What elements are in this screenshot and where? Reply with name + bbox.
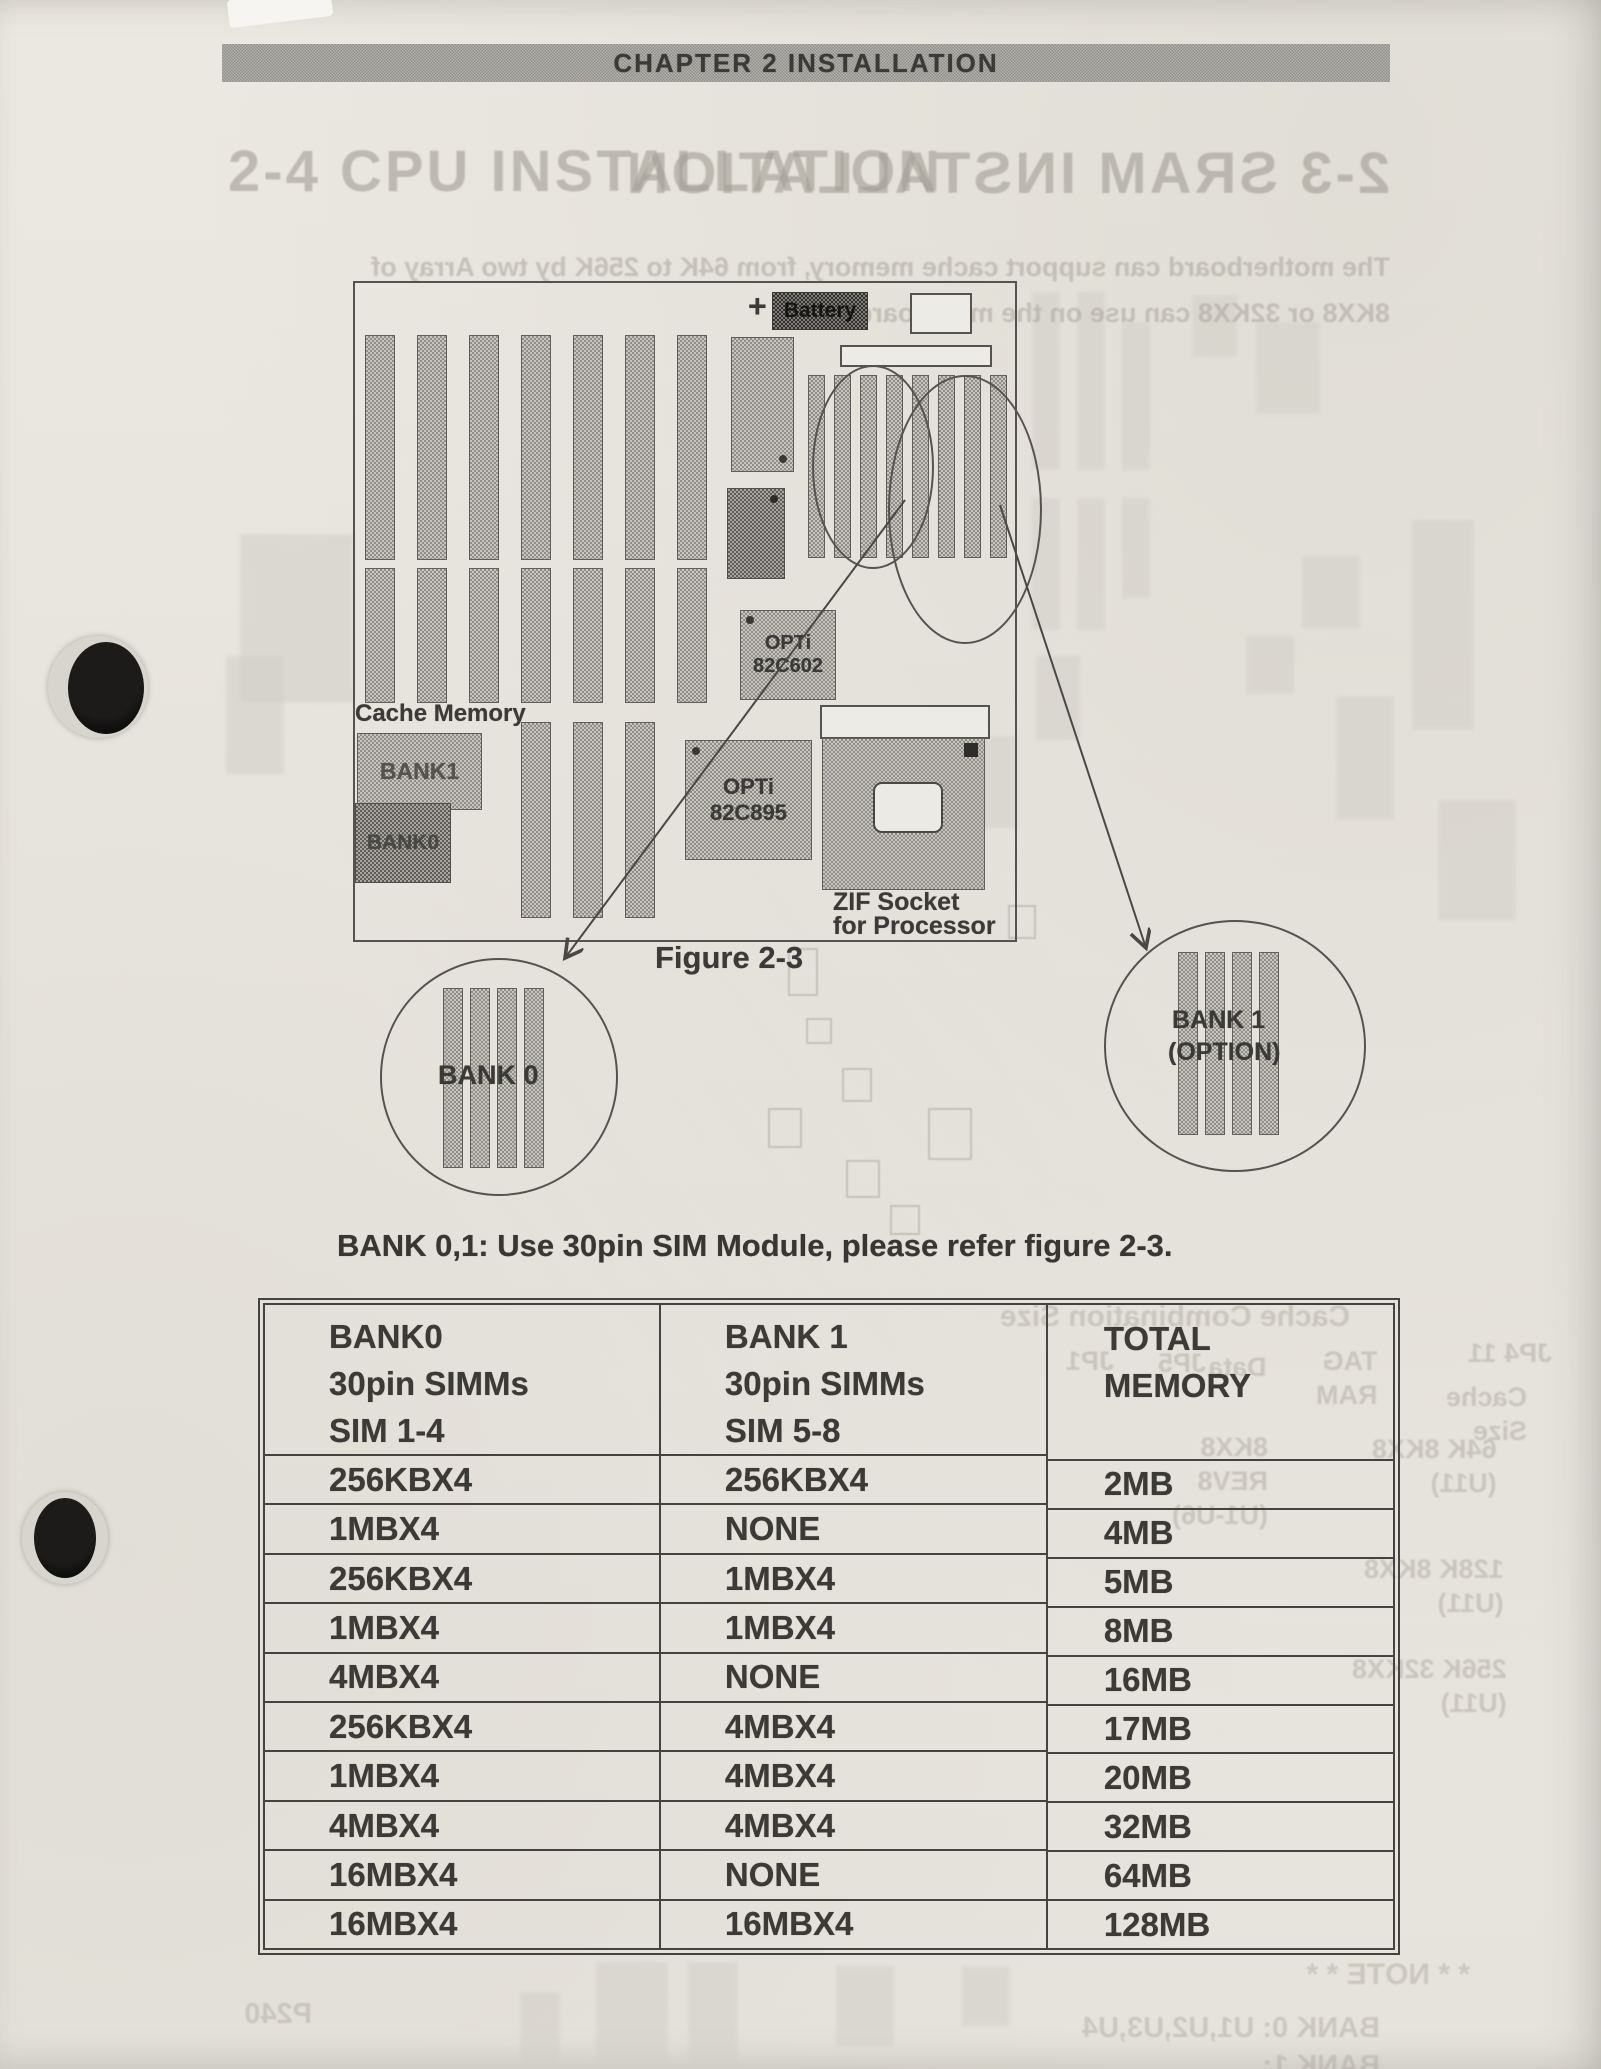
simm-highlight-ellipse-right [888, 375, 1042, 644]
total-header-line1: TOTAL [1104, 1315, 1393, 1362]
total-header-line2: MEMORY [1104, 1362, 1393, 1409]
bank1-callout-label-line1: BANK 1 [1172, 1006, 1265, 1035]
opti-82c895-label-line2: 82C895 [710, 800, 787, 826]
table-cell-bank0: 1MBX4 [265, 1750, 659, 1799]
chapter-header-bar: CHAPTER 2 INSTALLATION [222, 44, 1390, 82]
isa-slot-bar [677, 335, 707, 560]
table-cell-bank0: 1MBX4 [265, 1503, 659, 1552]
keyboard-controller-chip [727, 488, 785, 579]
table-cell-total: 20MB [1048, 1752, 1393, 1801]
table-cell-bank1: 4MBX4 [661, 1701, 1046, 1750]
ghost-table-fragment: JP4 11 [1468, 1336, 1552, 1370]
isa-slot-bar [521, 722, 551, 918]
bank-note-line: BANK 0,1: Use 30pin SIM Module, please r… [337, 1228, 1173, 1264]
opti-82c602-label-line2: 82C602 [753, 655, 823, 678]
chapter-header-text: CHAPTER 2 INSTALLATION [613, 48, 998, 79]
table-cell-total: 8MB [1048, 1606, 1393, 1655]
opti-82c602-label-line1: OPTi [765, 632, 811, 655]
isa-slot-bar [365, 335, 395, 560]
bios-chip [731, 337, 794, 472]
bleed-outline-box [846, 1160, 880, 1198]
figure-caption: Figure 2-3 [655, 940, 803, 976]
bleed-rect [1122, 322, 1150, 470]
cache-bank1-label: BANK1 [380, 758, 459, 785]
bleed-rect [520, 1992, 560, 2068]
table-cell-bank1: 256KBX4 [661, 1454, 1046, 1503]
table-cell-total: 17MB [1048, 1704, 1393, 1753]
table-cell-total: 32MB [1048, 1801, 1393, 1850]
table-cell-bank0: 16MBX4 [265, 1899, 659, 1948]
opti-82c602-chip: OPTi 82C602 [740, 610, 836, 700]
table-column-total: TOTAL MEMORY 2MB4MB5MB8MB16MB17MB20MB32M… [1048, 1305, 1393, 1948]
bleed-outline-box [806, 1018, 832, 1044]
isa-slot-bar [417, 568, 447, 703]
bank0-header-line1: BANK0 [329, 1313, 659, 1360]
table-column-bank1: BANK 1 30pin SIMMs SIM 5-8 256KBX4NONE1M… [661, 1305, 1048, 1948]
bank1-column-header: BANK 1 30pin SIMMs SIM 5-8 [661, 1305, 1046, 1454]
table-cell-bank1: 16MBX4 [661, 1899, 1046, 1948]
zif-lever-plate [820, 705, 990, 739]
bank0-header-line3: SIM 1-4 [329, 1407, 659, 1454]
opti-82c895-label-line1: OPTi [723, 774, 774, 800]
table-cell-bank0: 1MBX4 [265, 1602, 659, 1651]
total-column-header: TOTAL MEMORY [1048, 1305, 1393, 1459]
isa-slot-bar [677, 568, 707, 703]
table-cell-bank1: 1MBX4 [661, 1602, 1046, 1651]
bank1-header-line3: SIM 5-8 [725, 1407, 1046, 1454]
isa-slot-bar [417, 335, 447, 560]
cache-memory-label: Cache Memory [355, 700, 526, 728]
bleed-outline-box [768, 1108, 802, 1148]
bank0-column-header: BANK0 30pin SIMMs SIM 1-4 [265, 1305, 659, 1454]
isa-slot-bar [573, 335, 603, 560]
bleed-rect [688, 1962, 738, 2068]
bleed-rect [1412, 520, 1474, 730]
cache-bank1-block: BANK1 [357, 733, 482, 810]
isa-slot-bar [573, 722, 603, 918]
ghost-bank1-note: BANK 1: U7,U8,U9,U10 [1080, 2050, 1380, 2069]
table-cell-bank1: 1MBX4 [661, 1553, 1046, 1602]
bleed-rect [1122, 498, 1150, 598]
table-cell-total: 16MB [1048, 1655, 1393, 1704]
keyboard-connector [910, 293, 972, 334]
battery-block: Battery [772, 292, 868, 330]
opti-82c895-chip: OPTi 82C895 [685, 740, 812, 860]
bleed-outline-box [928, 1108, 972, 1160]
bleed-rect [1036, 656, 1080, 740]
bank0-header-line2: 30pin SIMMs [329, 1360, 659, 1407]
table-cell-bank1: 4MBX4 [661, 1750, 1046, 1799]
isa-slot-bar [625, 568, 655, 703]
bleed-rect [1302, 556, 1360, 628]
bank0-callout-label: BANK 0 [438, 1060, 539, 1091]
bleed-rect [1336, 696, 1394, 820]
bleed-rect [1246, 636, 1294, 694]
zif-label-line2: for Processor [833, 912, 996, 941]
memory-config-table: BANK0 30pin SIMMs SIM 1-4 256KBX41MBX425… [258, 1298, 1400, 1955]
bleed-rect [962, 1966, 1010, 2026]
table-column-bank0: BANK0 30pin SIMMs SIM 1-4 256KBX41MBX425… [265, 1305, 661, 1948]
bleed-rect [836, 1966, 894, 2046]
ghost-page-number: P240 [222, 1998, 312, 2031]
cache-bank0-label: BANK0 [367, 831, 439, 855]
table-cell-bank1: 4MBX4 [661, 1800, 1046, 1849]
bank1-header-line1: BANK 1 [725, 1313, 1046, 1360]
table-cell-bank0: 256KBX4 [265, 1454, 659, 1503]
table-cell-total: 5MB [1048, 1557, 1393, 1606]
table-cell-bank0: 16MBX4 [265, 1849, 659, 1898]
table-cell-total: 2MB [1048, 1459, 1393, 1508]
table-cell-total: 4MB [1048, 1508, 1393, 1557]
isa-slot-bar [521, 568, 551, 703]
ghost-title-back-mirrored: 2-3 SRAM INSTALLATION [555, 140, 1390, 207]
isa-slot-bar [469, 568, 499, 703]
ghost-note: * * NOTE * * [1270, 1958, 1470, 1992]
bleed-rect [596, 1962, 668, 2068]
table-cell-bank1: NONE [661, 1503, 1046, 1552]
ghost-paragraph-line1: The motherboard can support cache memory… [300, 252, 1390, 283]
zif-socket-body [822, 738, 985, 890]
bank1-header-line2: 30pin SIMMs [725, 1360, 1046, 1407]
table-cell-bank1: NONE [661, 1849, 1046, 1898]
battery-plus-sign: + [748, 288, 767, 325]
isa-slot-bar [521, 335, 551, 560]
memory-config-table-inner: BANK0 30pin SIMMs SIM 1-4 256KBX41MBX425… [263, 1303, 1395, 1950]
isa-slot-bar [469, 335, 499, 560]
table-cell-bank0: 256KBX4 [265, 1701, 659, 1750]
bleed-rect [1438, 800, 1516, 920]
isa-slot-bar [625, 722, 655, 918]
power-connector [840, 345, 992, 367]
isa-slot-bar [573, 568, 603, 703]
bleed-rect [1256, 322, 1320, 414]
isa-slot-bar [365, 568, 395, 703]
table-cell-total: 128MB [1048, 1899, 1393, 1948]
scanned-manual-page: 2-4 CPU INSTALLATION 2-3 SRAM INSTALLATI… [0, 0, 1601, 2069]
battery-label: Battery [784, 299, 856, 323]
bleed-outline-box [842, 1068, 872, 1102]
bleed-rect [1077, 498, 1105, 630]
table-cell-bank1: NONE [661, 1652, 1046, 1701]
isa-slot-bar [625, 335, 655, 560]
table-cell-total: 64MB [1048, 1850, 1393, 1899]
table-cell-bank0: 256KBX4 [265, 1553, 659, 1602]
bleed-rect [226, 656, 284, 774]
cache-bank0-block: BANK0 [355, 803, 451, 883]
table-cell-bank0: 4MBX4 [265, 1800, 659, 1849]
bank1-callout-label-line2: (OPTION) [1168, 1038, 1281, 1067]
ghost-bank0-note: BANK 0: U1,U2,U3,U4 [1080, 2012, 1380, 2045]
table-cell-bank0: 4MBX4 [265, 1652, 659, 1701]
